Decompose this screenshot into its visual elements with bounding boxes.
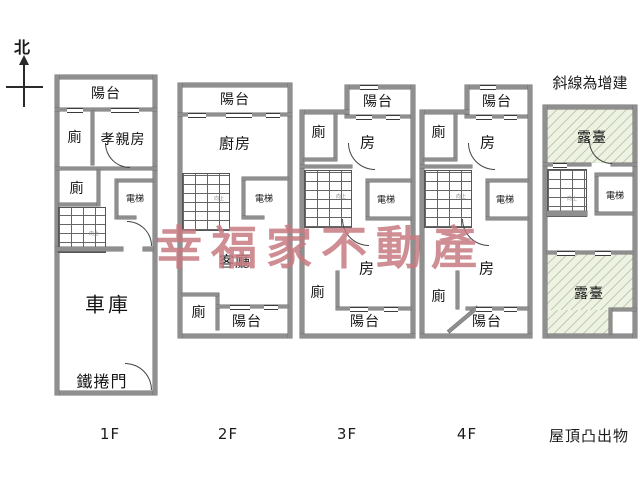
window-icon — [595, 251, 611, 256]
floor-plan-roof: 向上 露臺 電梯 露臺 — [543, 105, 637, 338]
room-label-elevator: 電梯 — [126, 192, 144, 205]
window-icon — [384, 307, 398, 312]
wall — [543, 105, 547, 338]
wall — [91, 111, 94, 165]
window-icon — [226, 113, 252, 118]
door-arc — [127, 221, 152, 246]
window-icon — [67, 108, 83, 113]
wall — [336, 307, 411, 310]
agency-watermark: 幸福家不動產 — [156, 212, 486, 278]
terrace-hatched-area — [547, 310, 609, 334]
window-icon — [553, 163, 567, 168]
room-label-balcony: 陽台 — [482, 91, 512, 111]
window-icon — [360, 85, 378, 90]
room-label-room: 房 — [480, 132, 496, 153]
wall — [288, 83, 292, 338]
wall — [633, 105, 637, 338]
room-label-terrace: 露臺 — [574, 283, 604, 303]
wall — [465, 115, 528, 118]
wall — [528, 85, 532, 338]
stair-direction-note: 向上 — [214, 195, 224, 202]
wall — [486, 217, 528, 220]
room-label-kitchen: 廚房 — [219, 133, 251, 154]
floorplan-page: { "compass": { "north_label": "北" }, "le… — [0, 0, 640, 480]
wall — [595, 212, 633, 215]
wall — [543, 163, 591, 166]
room-label-toilet: 廁 — [432, 286, 447, 306]
window-icon — [504, 115, 517, 120]
window-icon — [188, 113, 206, 118]
wall — [420, 334, 532, 338]
wall — [178, 334, 292, 338]
floor-plan-1f: 向上 陽台 廁 孝親房 廁 電梯 車庫 鐵捲門 — [55, 75, 157, 395]
wall — [595, 173, 633, 176]
north-arrow-line — [23, 63, 25, 107]
room-label-toilet: 廁 — [70, 178, 85, 198]
wall — [486, 179, 528, 182]
wall — [424, 158, 457, 161]
wall — [609, 308, 612, 334]
window-icon — [264, 305, 278, 310]
wall — [345, 115, 411, 118]
wall — [611, 163, 637, 166]
room-label-toilet: 廁 — [312, 122, 327, 142]
room-label-roller-door: 鐵捲門 — [76, 368, 127, 392]
wall — [242, 177, 288, 180]
window-icon — [230, 305, 250, 310]
room-label-balcony: 陽台 — [91, 83, 121, 103]
wall — [300, 165, 352, 168]
wall — [454, 114, 457, 160]
wall — [143, 247, 153, 251]
wall — [304, 158, 337, 161]
window-icon — [557, 251, 575, 256]
compass-crossbar — [6, 86, 43, 88]
wall — [55, 167, 157, 170]
room-label-terrace: 露臺 — [577, 127, 607, 147]
room-label-toilet: 廁 — [68, 127, 83, 147]
wall — [59, 203, 99, 206]
wall — [300, 334, 415, 338]
window-icon — [386, 115, 400, 120]
window-icon — [480, 85, 496, 90]
wall — [465, 85, 528, 89]
window-icon — [504, 307, 517, 312]
wall — [420, 165, 472, 168]
stair-direction-note: 向上 — [567, 195, 577, 202]
stair-direction-note: 向上 — [456, 193, 466, 200]
door-arc — [125, 363, 152, 390]
room-label-elevator: 電梯 — [496, 193, 514, 206]
wall — [115, 179, 118, 219]
wall — [609, 308, 636, 311]
room-label-toilet: 廁 — [192, 302, 207, 322]
wall — [547, 211, 587, 216]
room-label-toilet: 廁 — [432, 122, 447, 142]
room-label-elevator: 電梯 — [606, 189, 624, 202]
room-label-elevator: 電梯 — [255, 192, 273, 205]
window-icon — [476, 115, 492, 120]
wall — [97, 170, 100, 206]
room-label-balcony: 陽台 — [220, 89, 250, 109]
wall — [543, 105, 637, 109]
wall — [345, 85, 411, 89]
wall — [366, 179, 411, 182]
wall — [55, 75, 157, 79]
wall — [486, 179, 489, 220]
wall — [178, 83, 292, 87]
room-label-elevator: 電梯 — [377, 193, 395, 206]
floor-caption-4f: 4F — [457, 425, 477, 443]
room-label-garage: 車庫 — [85, 289, 131, 318]
stair-direction-note: 向上 — [89, 230, 99, 237]
room-label-balcony: 陽台 — [363, 91, 393, 111]
wall — [118, 179, 153, 182]
wall — [118, 216, 136, 219]
staircase — [547, 169, 587, 217]
wall — [216, 293, 219, 330]
window-icon — [111, 108, 139, 113]
room-label-balcony: 陽台 — [350, 311, 380, 331]
room-label-toilet: 廁 — [311, 282, 326, 302]
floor-plan-2f: 向上 陽台 廚房 電梯 客廳 廁 陽台 — [178, 83, 292, 338]
floor-caption-2f: 2F — [218, 425, 238, 443]
floor-caption-roof: 屋頂凸出物 — [549, 425, 629, 446]
wall — [543, 334, 637, 338]
room-label-balcony: 陽台 — [232, 311, 262, 331]
room-label-balcony: 陽台 — [472, 311, 502, 331]
wall — [420, 110, 469, 114]
wall — [55, 247, 123, 251]
window-icon — [356, 115, 372, 120]
hatch-legend-note: 斜線為增建 — [540, 72, 640, 93]
floor-caption-1f: 1F — [100, 425, 120, 443]
wall — [182, 293, 218, 296]
floor-caption-3f: 3F — [337, 425, 357, 443]
room-label-parents-room: 孝親房 — [101, 129, 146, 149]
room-label-room: 房 — [360, 132, 376, 153]
wall — [595, 173, 598, 215]
wall — [300, 110, 349, 114]
window-icon — [266, 113, 280, 118]
stair-direction-note: 向上 — [336, 193, 346, 200]
wall — [334, 114, 337, 160]
